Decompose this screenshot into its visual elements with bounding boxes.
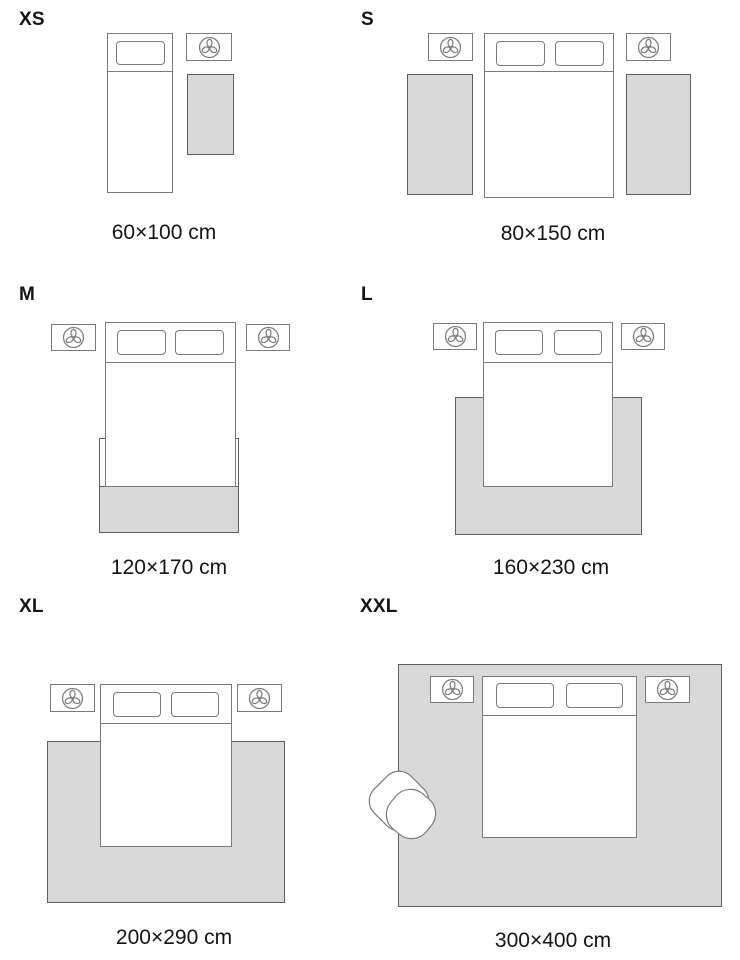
double-bed xyxy=(484,33,614,198)
bed-headboard xyxy=(108,34,172,72)
size-caption-xxl: 300×400 cm xyxy=(473,929,633,953)
rug-s-left xyxy=(407,74,473,195)
size-label-xxl: XXL xyxy=(360,596,398,618)
size-caption-l: 160×230 cm xyxy=(471,556,631,580)
size-caption-s: 80×150 cm xyxy=(473,222,633,246)
plant-icon xyxy=(248,687,271,710)
nightstand xyxy=(621,323,665,350)
nightstand xyxy=(50,684,95,712)
nightstand xyxy=(433,323,477,350)
nightstand xyxy=(626,33,671,61)
nightstand xyxy=(237,684,282,712)
double-bed xyxy=(482,676,637,838)
bed-headboard xyxy=(101,685,231,724)
bed-headboard xyxy=(483,677,636,716)
pillow xyxy=(496,41,545,66)
double-bed xyxy=(100,684,232,847)
bed-headboard xyxy=(485,34,613,72)
pillow xyxy=(175,330,224,355)
plant-icon xyxy=(632,325,655,348)
plant-icon xyxy=(198,36,221,59)
plant-icon xyxy=(62,326,85,349)
pillow xyxy=(555,41,604,66)
double-bed xyxy=(105,322,236,487)
rug-size-guide: XS 60×100 cm S 80×150 cm M xyxy=(0,0,740,960)
double-bed xyxy=(483,322,613,487)
nightstand xyxy=(246,324,290,351)
plant-icon xyxy=(441,678,464,701)
pillow xyxy=(116,41,165,65)
bed-headboard xyxy=(106,323,235,363)
plant-icon xyxy=(444,325,467,348)
size-label-xs: XS xyxy=(19,9,45,31)
plant-icon xyxy=(61,687,84,710)
size-label-xl: XL xyxy=(19,596,44,618)
rug-m-visible-area xyxy=(100,486,238,532)
size-label-m: M xyxy=(19,284,35,306)
pillow xyxy=(171,692,219,717)
size-label-l: L xyxy=(361,284,373,306)
rug-xs xyxy=(187,74,234,155)
armchair xyxy=(358,762,448,857)
pillow xyxy=(554,330,602,355)
rug-s-right xyxy=(626,74,691,195)
plant-icon xyxy=(439,36,462,59)
nightstand xyxy=(645,676,690,703)
pillow xyxy=(496,683,554,708)
pillow xyxy=(495,330,543,355)
single-bed xyxy=(107,33,173,193)
size-caption-xl: 200×290 cm xyxy=(94,926,254,950)
nightstand xyxy=(428,33,473,61)
plant-icon xyxy=(257,326,280,349)
size-caption-m: 120×170 cm xyxy=(89,556,249,580)
nightstand xyxy=(430,676,474,703)
nightstand xyxy=(51,324,96,351)
pillow xyxy=(117,330,166,355)
pillow xyxy=(566,683,623,708)
plant-icon xyxy=(656,678,679,701)
pillow xyxy=(113,692,161,717)
size-label-s: S xyxy=(361,9,374,31)
plant-icon xyxy=(637,36,660,59)
size-caption-xs: 60×100 cm xyxy=(84,221,244,245)
bed-headboard xyxy=(484,323,612,363)
nightstand xyxy=(186,33,232,61)
